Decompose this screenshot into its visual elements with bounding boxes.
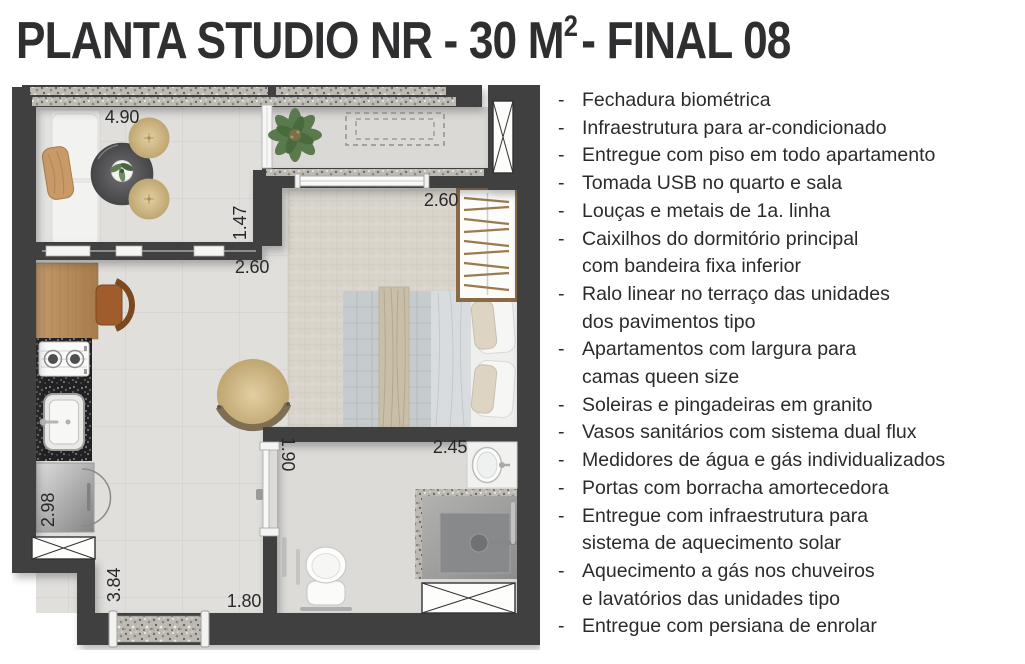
- bullet-dash: -: [558, 281, 582, 336]
- shower-head: [470, 534, 488, 552]
- feature-item: -Louças e metais de 1a. linha: [558, 198, 1020, 226]
- feature-item: -Aquecimento a gás nos chuveiros e lavat…: [558, 558, 1020, 613]
- bullet-dash: -: [558, 336, 582, 391]
- feature-item: -Caixilhos do dormitório principal com b…: [558, 226, 1020, 281]
- door-handle: [256, 489, 263, 500]
- feature-item: -Vasos sanitários com sistema dual flux: [558, 419, 1020, 447]
- bullet-dash: -: [558, 115, 582, 143]
- bullet-dash: -: [558, 613, 582, 641]
- bed: [343, 287, 517, 429]
- feature-item: -Fechadura biométrica: [558, 87, 1020, 115]
- shaft-box-terrace: [493, 101, 513, 173]
- feature-text: Soleiras e pingadeiras em granito: [582, 392, 873, 420]
- feature-item: -Apartamentos com largura para camas que…: [558, 336, 1020, 391]
- bullet-dash: -: [558, 419, 582, 447]
- dimension-label: 1.47: [230, 206, 250, 240]
- feature-item: -Infraestrutura para ar-condicionado: [558, 115, 1020, 143]
- feature-text: Entregue com piso em todo apartamento: [582, 142, 935, 170]
- bullet-dash: -: [558, 142, 582, 170]
- shaft-box-bathroom: [422, 583, 515, 613]
- shaft-box-laundry: [32, 537, 95, 559]
- feature-text: Ralo linear no terraço das unidades dos …: [582, 281, 890, 336]
- bed-throw: [379, 287, 409, 429]
- dimension-label: 2.98: [38, 493, 58, 527]
- feature-item: -Tomada USB no quarto e sala: [558, 170, 1020, 198]
- feature-text: Portas com borracha amortecedora: [582, 475, 889, 503]
- feature-text: Medidores de água e gás individualizados: [582, 447, 945, 475]
- feature-text: Aquecimento a gás nos chuveiros e lavató…: [582, 558, 875, 613]
- feature-text: Entregue com persiana de enrolar: [582, 613, 877, 641]
- grab-bar: [296, 549, 300, 585]
- feature-item: -Entregue com persiana de enrolar: [558, 613, 1020, 641]
- terrace-plant: [268, 108, 322, 162]
- feature-item: -Soleiras e pingadeiras em granito: [558, 392, 1020, 420]
- bullet-dash: -: [558, 87, 582, 115]
- dimension-label: 3.84: [104, 568, 124, 602]
- dimension-label: 2.60: [424, 190, 458, 210]
- bullet-dash: -: [558, 503, 582, 558]
- feature-item: -Ralo linear no terraço das unidades dos…: [558, 281, 1020, 336]
- feature-item: -Medidores de água e gás individualizado…: [558, 447, 1020, 475]
- dimension-label: 4.90: [105, 107, 139, 127]
- feature-text: Tomada USB no quarto e sala: [582, 170, 842, 198]
- dimension-label: 2.45: [433, 437, 467, 457]
- bullet-dash: -: [558, 198, 582, 226]
- feature-item: -Entregue com piso em todo apartamento: [558, 142, 1020, 170]
- feature-text: Vasos sanitários com sistema dual flux: [582, 419, 917, 447]
- bullet-dash: -: [558, 170, 582, 198]
- feature-text: Louças e metais de 1a. linha: [582, 198, 830, 226]
- title-superscript: 2: [564, 10, 578, 43]
- feature-text: Fechadura biométrica: [582, 87, 771, 115]
- bullet-dash: -: [558, 392, 582, 420]
- title-text-2: - FINAL 08: [581, 12, 790, 70]
- grab-bar: [300, 607, 352, 611]
- bullet-dash: -: [558, 447, 582, 475]
- cooktop: [39, 342, 89, 376]
- feature-list: -Fechadura biométrica-Infraestrutura par…: [558, 87, 1020, 641]
- floor-plan: 4.901.472.602.602.451.902.983.841.80: [12, 85, 540, 650]
- page-title: PLANTA STUDIO NR - 30 M2- FINAL 08: [16, 10, 791, 71]
- bedroom-window: [295, 174, 429, 188]
- feature-text: Infraestrutura para ar-condicionado: [582, 115, 887, 143]
- bullet-dash: -: [558, 226, 582, 281]
- feature-item: -Portas com borracha amortecedora: [558, 475, 1020, 503]
- feature-item: -Entregue com infraestrutura para sistem…: [558, 503, 1020, 558]
- bullet-dash: -: [558, 475, 582, 503]
- dimension-label: 1.90: [278, 437, 298, 471]
- kitchen-table: [36, 263, 98, 339]
- grab-bar: [511, 502, 515, 544]
- wardrobe: [458, 188, 517, 300]
- title-text: PLANTA STUDIO NR - 30 M: [16, 12, 564, 70]
- dimension-label: 1.80: [227, 591, 261, 611]
- feature-text: Apartamentos com largura para camas quee…: [582, 336, 856, 391]
- kitchen-sink: [40, 394, 85, 450]
- entry-door: [109, 611, 209, 647]
- feature-text: Caixilhos do dormitório principal com ba…: [582, 226, 858, 281]
- page: { "title": { "part1": "PLANTA STUDIO NR …: [0, 0, 1025, 664]
- feature-text: Entregue com infraestrutura para sistema…: [582, 503, 868, 558]
- bathroom-sink: [467, 442, 517, 493]
- shower: [415, 489, 517, 579]
- sofa: [36, 110, 100, 252]
- grab-bar: [282, 537, 287, 577]
- bullet-dash: -: [558, 558, 582, 613]
- dimension-label: 2.60: [235, 257, 269, 277]
